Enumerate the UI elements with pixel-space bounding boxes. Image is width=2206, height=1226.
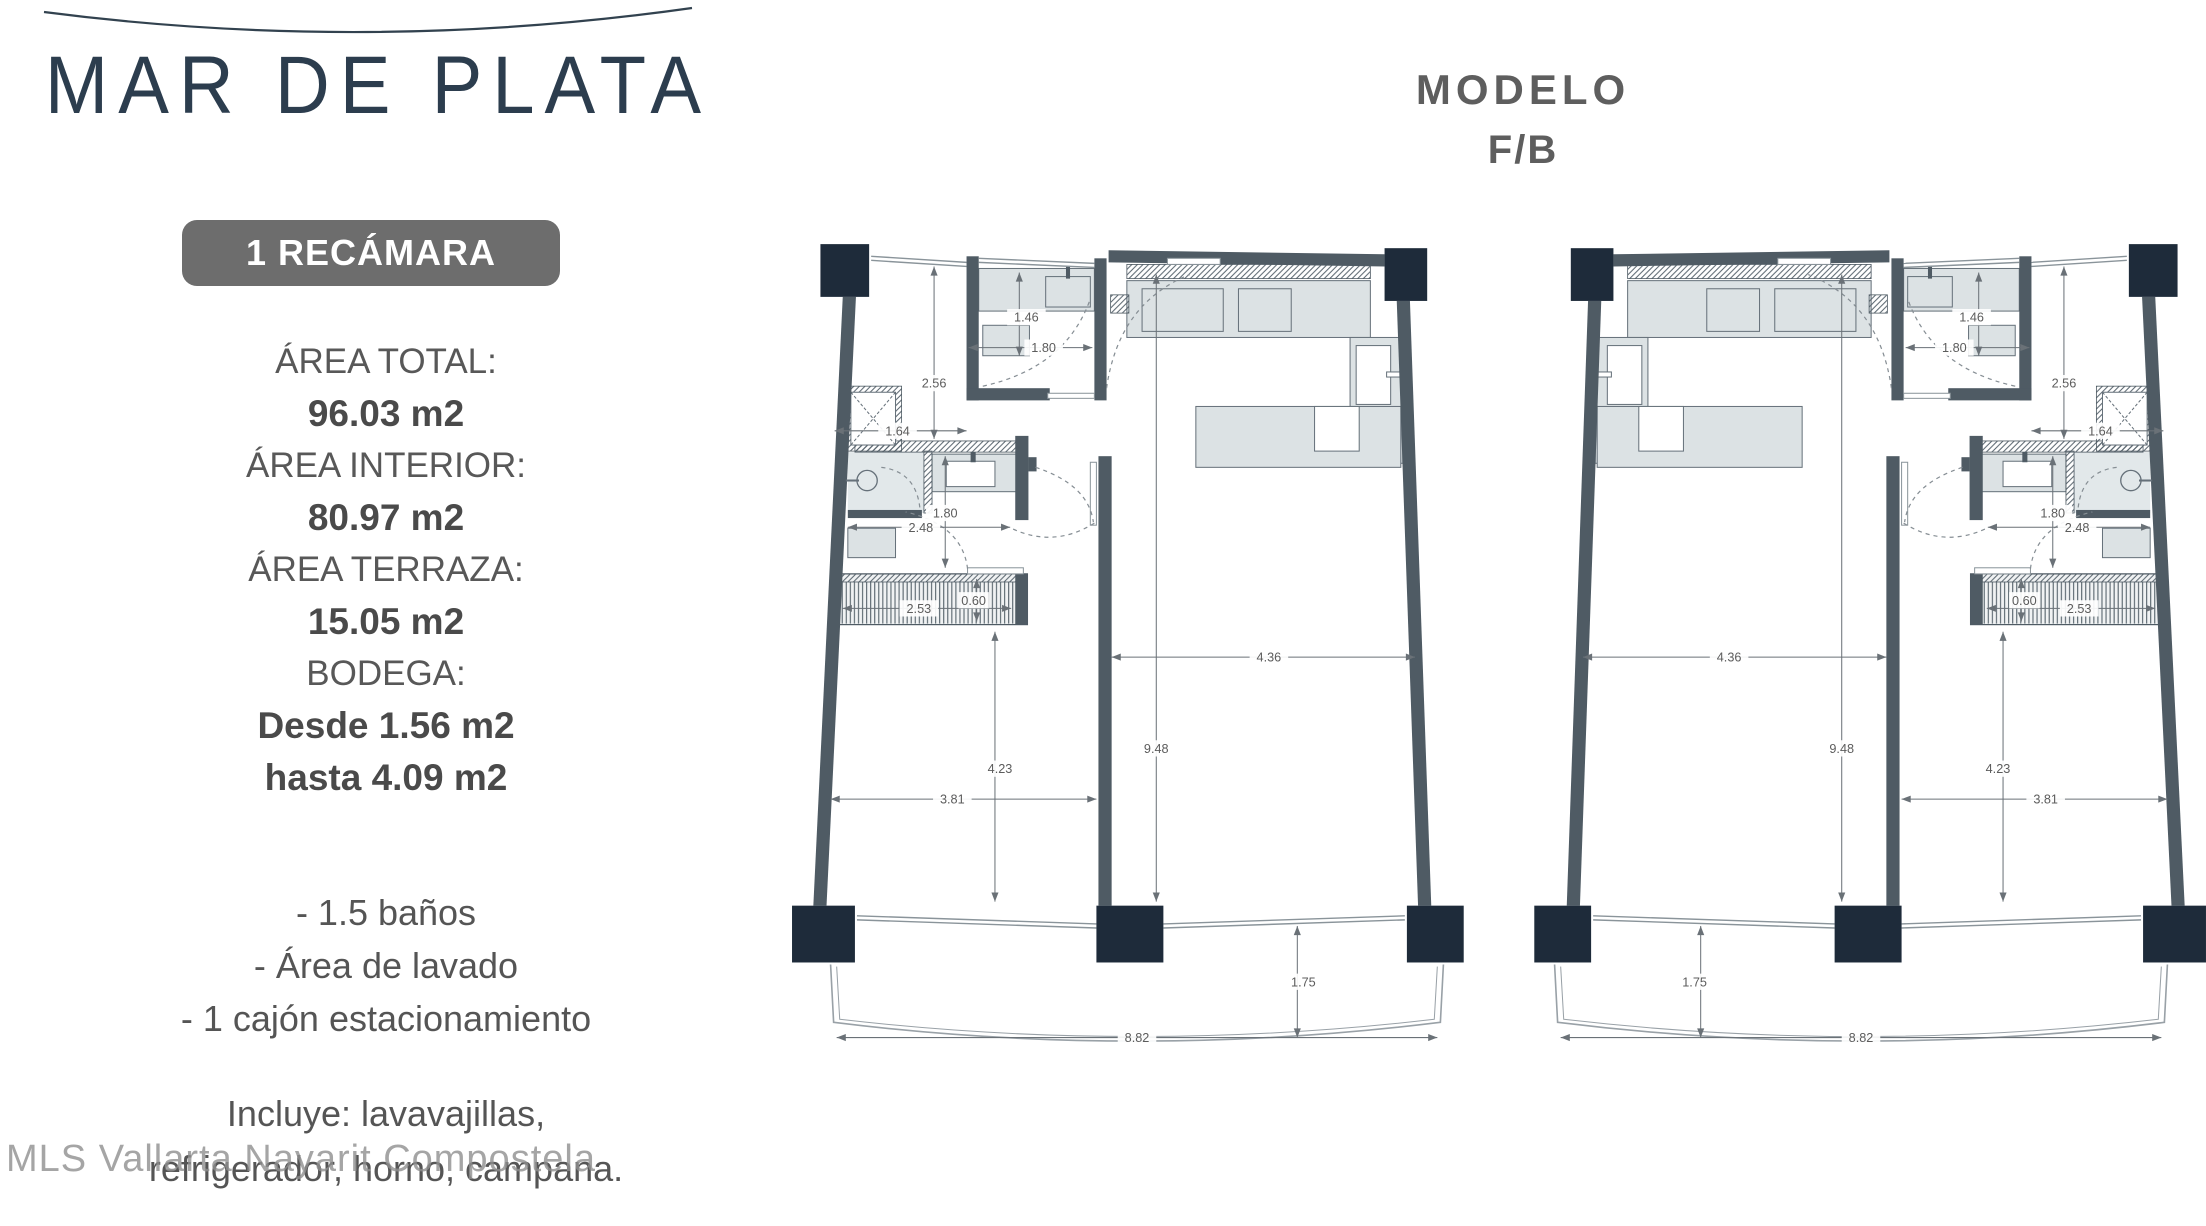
dim-label-hall_h: 2.56 <box>2052 377 2077 391</box>
model-heading: MODELO F/B <box>1373 66 1673 173</box>
dim-label-bedroom_w: 3.81 <box>940 793 965 807</box>
dim-bedroom_h: 4.23 <box>1979 632 2018 902</box>
features-list: - 1.5 baños - Área de lavado - 1 cajón e… <box>0 886 772 1045</box>
dim-label-balcony_d: 1.75 <box>1291 975 1316 989</box>
model-title: MODELO <box>1373 66 1673 114</box>
dim-label-hall_h: 2.56 <box>922 377 947 391</box>
dim-hall_h: 2.56 <box>2045 266 2084 438</box>
dim-label-bath_h: 1.80 <box>933 507 958 521</box>
dim-label-terrace_w: 2.53 <box>907 602 932 616</box>
dim-label-bath_w: 2.48 <box>2065 521 2090 535</box>
dim-label-terrace_d: 0.60 <box>961 594 986 608</box>
spec-value-area-total: 96.03 m2 <box>0 388 772 440</box>
spec-value-bodega-hasta: hasta 4.09 m2 <box>0 752 772 804</box>
dim-interior_h: 9.48 <box>1822 275 1861 902</box>
spec-value-area-interior: 80.97 m2 <box>0 492 772 544</box>
dim-living_w: 4.36 <box>1112 649 1415 665</box>
dim-label-balcony_w: 8.82 <box>1849 1031 1874 1045</box>
dim-label-bath_h: 1.80 <box>2040 507 2065 521</box>
specs-list: ÁREA TOTAL: 96.03 m2 ÁREA INTERIOR: 80.9… <box>0 336 772 804</box>
dim-bedroom_h: 4.23 <box>981 632 1020 902</box>
floorplan-left: 1.461.802.561.641.802.482.530.609.484.36… <box>792 236 1482 1068</box>
dim-label-terrace_d: 0.60 <box>2012 594 2037 608</box>
spec-label-area-terraza: ÁREA TERRAZA: <box>0 544 772 596</box>
dim-label-balcony_w: 8.82 <box>1125 1031 1150 1045</box>
dim-living_w: 4.36 <box>1583 649 1886 665</box>
dim-label-bedroom_h: 4.23 <box>988 762 1013 776</box>
spec-label-bodega: BODEGA: <box>0 648 772 700</box>
dim-label-interior_h: 9.48 <box>1144 742 1169 756</box>
bedrooms-badge: 1 RECÁMARA <box>182 220 560 286</box>
dim-bedroom_w: 3.81 <box>1902 791 2168 807</box>
brand-title: MAR DE PLATA <box>28 39 728 133</box>
dim-label-living_w: 4.36 <box>1257 651 1282 665</box>
dim-label-terrace_w: 2.53 <box>2067 602 2092 616</box>
spec-value-area-terraza: 15.05 m2 <box>0 596 772 648</box>
spec-label-area-total: ÁREA TOTAL: <box>0 336 772 388</box>
feature-parking: - 1 cajón estacionamiento <box>0 992 772 1045</box>
dim-label-living_w: 4.36 <box>1717 651 1742 665</box>
dim-label-bath_w: 2.48 <box>909 521 934 535</box>
dim-balcony_d: 1.75 <box>1284 926 1323 1038</box>
dim-label-balcony_d: 1.75 <box>1682 975 1707 989</box>
dim-label-laundry_h: 1.46 <box>1959 311 1984 325</box>
dim-label-hall_w: 1.64 <box>2088 424 2113 438</box>
feature-banos: - 1.5 baños <box>0 886 772 939</box>
dim-bedroom_w: 3.81 <box>831 791 1097 807</box>
dim-label-laundry_w: 1.80 <box>1942 341 1967 355</box>
watermark: MLS Vallarta Nayarit Compostela <box>6 1138 596 1181</box>
spec-label-area-interior: ÁREA INTERIOR: <box>0 440 772 492</box>
dim-hall_h: 2.56 <box>915 266 954 438</box>
dim-label-laundry_w: 1.80 <box>1031 341 1056 355</box>
model-code: F/B <box>1373 128 1673 173</box>
dim-label-bedroom_w: 3.81 <box>2033 793 2058 807</box>
dim-balcony_d: 1.75 <box>1675 926 1714 1038</box>
dim-label-hall_w: 1.64 <box>885 424 910 438</box>
dim-label-bedroom_h: 4.23 <box>1986 762 2011 776</box>
floorplan-right: 1.461.802.561.641.802.482.530.609.484.36… <box>1516 236 2206 1068</box>
dim-label-interior_h: 9.48 <box>1829 742 1854 756</box>
dim-interior_h: 9.48 <box>1137 275 1176 902</box>
feature-lavado: - Área de lavado <box>0 939 772 992</box>
spec-value-bodega-desde: Desde 1.56 m2 <box>0 700 772 752</box>
dim-label-laundry_h: 1.46 <box>1014 311 1039 325</box>
includes-line-1: Incluye: lavavajillas, <box>0 1086 772 1141</box>
